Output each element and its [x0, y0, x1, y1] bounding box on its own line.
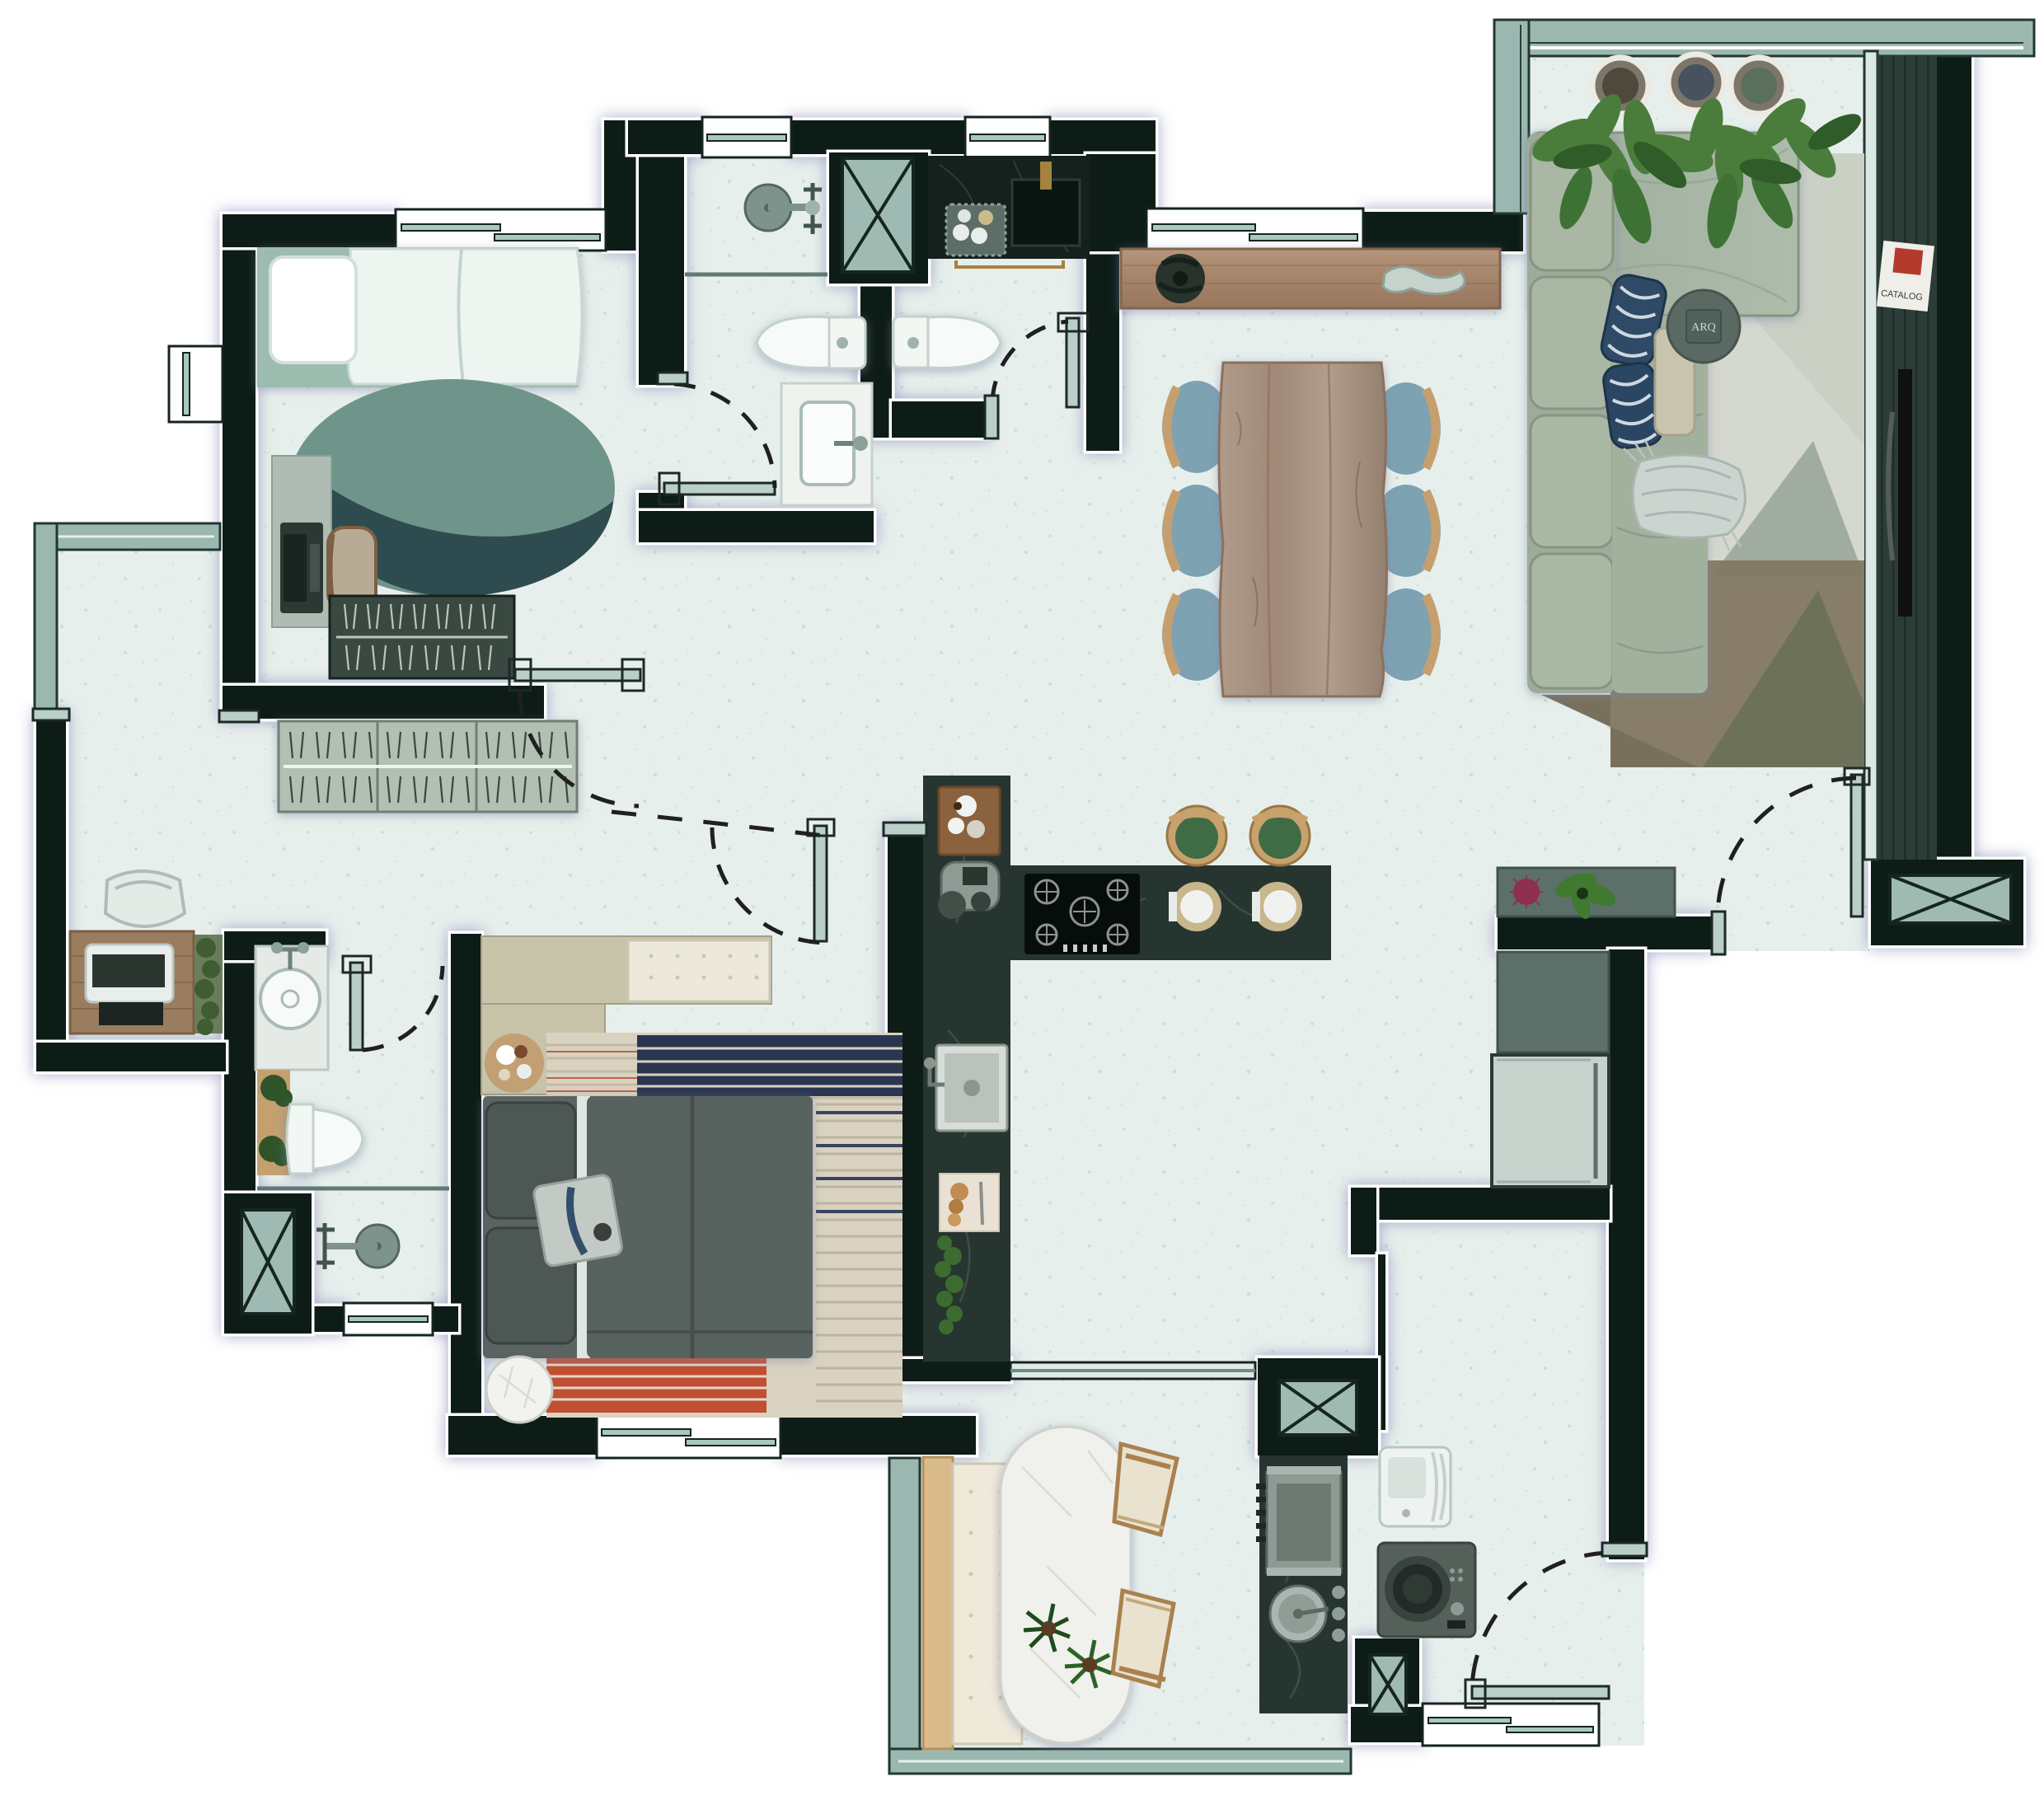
svg-text:ARQ: ARQ — [1691, 321, 1716, 334]
